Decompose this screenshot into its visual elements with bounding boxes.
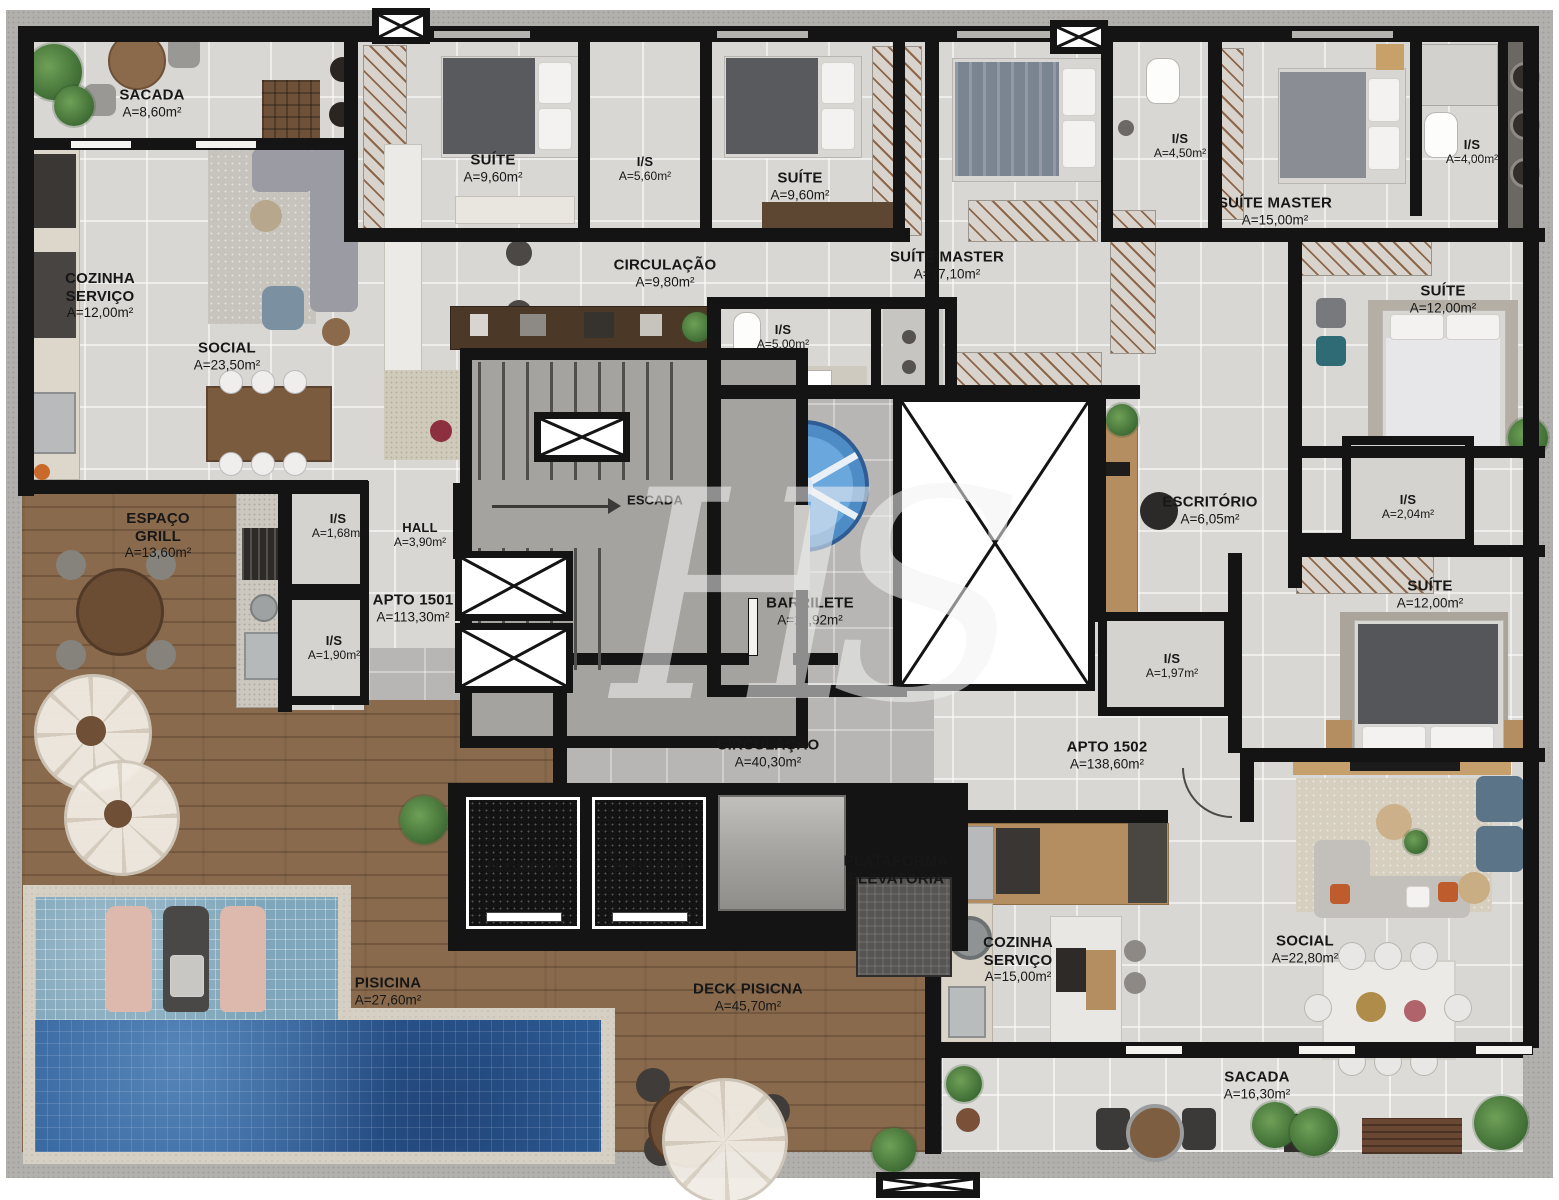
plant (1106, 404, 1138, 436)
island-wood (1086, 950, 1116, 1010)
room-area: A=1,90m² (308, 648, 360, 663)
room-label-suite_2: SUÍTEA=9,60m² (771, 170, 830, 205)
wall (925, 810, 1168, 823)
shower-head (902, 330, 916, 344)
decor (470, 314, 488, 336)
room-area: A=9,60m² (771, 187, 830, 204)
balcony-door (1298, 1045, 1356, 1055)
shower-head (1118, 120, 1134, 136)
wall (707, 297, 721, 399)
main-shaft (895, 395, 1095, 691)
sofa (252, 148, 314, 192)
room-label-elevador_1: ELEVADOR (487, 859, 560, 874)
cushion (1330, 884, 1350, 904)
wall (893, 40, 905, 234)
armchair (1476, 826, 1524, 872)
closet (948, 352, 1102, 388)
room-name: SOCIAL (194, 340, 260, 358)
room-label-social_1501: SOCIALA=23,50m² (194, 340, 260, 375)
room-label-deck_pisicna: DECK PISICNAA=45,70m² (693, 981, 803, 1016)
pool-lounger (106, 906, 152, 1012)
plant (946, 1066, 982, 1102)
umbrella (662, 1078, 788, 1200)
room-area: A=22,80m² (1272, 950, 1338, 967)
room-name: SUÍTE (464, 152, 523, 170)
room-area: A=9,80m² (614, 274, 717, 291)
room-label-circulacao_1501: CIRCULAÇÃOA=9,80m² (614, 257, 717, 292)
bed-blanket (1386, 338, 1500, 446)
dresser (762, 202, 900, 230)
chair (219, 452, 243, 476)
wall (1523, 26, 1539, 1048)
room-name: BARRILETE (766, 595, 854, 613)
plant (400, 796, 448, 844)
pool-lounger (220, 906, 266, 1012)
room-label-escada: ESCADA (627, 492, 683, 507)
bowl (430, 420, 452, 442)
room-area: A=12,00m² (1397, 595, 1463, 612)
room-label-is_master_1502: I/SA=4,00m² (1446, 137, 1498, 167)
room-label-hall: HALLA=3,90m² (394, 520, 446, 550)
room-area: A=13,60m² (112, 545, 204, 562)
nightstand (1376, 44, 1404, 70)
room-name: I/S (1446, 137, 1498, 152)
wall (1228, 553, 1242, 753)
balcony-door (195, 140, 257, 149)
room-label-escritorio: ESCRITÓRIOA=6,05m² (1162, 494, 1257, 529)
room-name: ESCADA (627, 492, 683, 507)
buffet (262, 80, 320, 142)
room-label-is_168: I/SA=1,68m² (312, 511, 364, 541)
room-area: A=138,60m² (1067, 756, 1148, 773)
wall (707, 685, 907, 697)
room-area: A=12,00m² (1410, 300, 1476, 317)
closet (968, 200, 1098, 242)
room-name: SACADA (119, 87, 184, 105)
armchair (262, 286, 304, 330)
window-sill (432, 29, 532, 40)
room-label-is_suites: I/SA=5,60m² (619, 154, 671, 184)
cushion (1316, 336, 1346, 366)
room-label-is_master_1501: I/SA=4,50m² (1154, 131, 1206, 161)
decor (640, 314, 662, 336)
window-sill (1290, 29, 1395, 40)
chair (283, 370, 307, 394)
room-name: SACADA (1224, 1069, 1290, 1087)
armchair (1476, 776, 1524, 822)
dining-table (206, 386, 332, 462)
wall (925, 40, 939, 399)
wall (1240, 748, 1254, 822)
wall (18, 480, 368, 494)
room-area: A=11,92m² (766, 612, 854, 629)
room-name: COZINHA SERVIÇO (971, 934, 1066, 969)
room-area: A=1,97m² (1146, 666, 1198, 681)
room-area: A=12,00m² (53, 305, 148, 322)
decor (520, 314, 546, 336)
chair (1410, 942, 1438, 970)
chair (1444, 994, 1472, 1022)
room-name: I/S (1146, 651, 1198, 666)
bench (455, 196, 575, 224)
round-sink (250, 594, 278, 622)
wall (793, 653, 838, 665)
wall (344, 228, 910, 242)
tall-cabinet (1128, 823, 1167, 903)
chair (56, 640, 86, 670)
room-label-circulacao_comum: CIRCULAÇÃOA=40,30m² (717, 737, 820, 772)
wall (1101, 40, 1113, 232)
shower-head (902, 360, 916, 374)
room-label-apto_1501: APTO 1501A=113,30m² (373, 592, 454, 627)
room-area: A=1,68m² (312, 526, 364, 541)
chair (1182, 1108, 1216, 1150)
room-name: SUÍTE (1397, 578, 1463, 596)
room-label-pisicina: PISICINAA=27,60m² (355, 975, 422, 1010)
window-sill (715, 29, 810, 40)
shaft-box (876, 1172, 980, 1198)
centerpiece (1356, 992, 1386, 1022)
room-area: A=5,00m² (757, 337, 809, 352)
coffee-table (250, 200, 282, 232)
stair-arrow-line (492, 505, 610, 508)
bench (1362, 1118, 1462, 1154)
centerpiece (1404, 1000, 1426, 1022)
room-area: A=40,30m² (717, 754, 820, 771)
elevator-shaft-box (455, 551, 573, 621)
room-label-is_500: I/SA=5,00m² (757, 322, 809, 352)
chair (283, 452, 307, 476)
bed-blanket (726, 58, 818, 154)
room-label-is_190: I/SA=1,90m² (308, 633, 360, 663)
room-area: A=113,30m² (373, 609, 454, 626)
room-name: I/S (312, 511, 364, 526)
table (76, 716, 106, 746)
room-area: A=2,04m² (1382, 507, 1434, 522)
wall (578, 40, 590, 234)
floor-plan: ♿ (0, 0, 1559, 1200)
bed-blanket (955, 62, 1059, 176)
room-name: APTO 1502 (1067, 739, 1148, 757)
room-name: APTO 1501 (373, 592, 454, 610)
chair (1338, 942, 1366, 970)
room-name: ESCRITÓRIO (1162, 494, 1257, 512)
room-name: PISICINA (355, 975, 422, 993)
elevator-shaft-box (455, 623, 573, 693)
stool (1124, 972, 1146, 994)
room-label-plataforma: PLATAFORMA ELEVATÓRIA (835, 852, 957, 887)
side-table (322, 318, 350, 346)
room-label-sacada_1502: SACADAA=16,30m² (1224, 1069, 1290, 1104)
stair-arrow-head (608, 498, 621, 514)
plant (1290, 1108, 1338, 1156)
room-name: SUÍTE (771, 170, 830, 188)
shaft-box (372, 8, 430, 44)
appliance (996, 828, 1040, 894)
room-name: I/S (757, 322, 809, 337)
chair (56, 550, 86, 580)
side-table (1458, 872, 1490, 904)
cushion (1316, 298, 1346, 328)
table (104, 800, 132, 828)
bed-blanket (1358, 624, 1498, 724)
storage-cabinet (718, 795, 846, 911)
room-label-suite_master_1502: SUÍTE MASTERA=15,00m² (1218, 195, 1332, 230)
room-area: A=16,30m² (1224, 1086, 1290, 1103)
toilet (1146, 58, 1180, 104)
cushion (1438, 882, 1458, 902)
room-name: SUÍTE (1410, 283, 1476, 301)
room-name: ESPAÇO GRILL (112, 510, 204, 545)
room-name: I/S (308, 633, 360, 648)
room-name: SUÍTE MASTER (1218, 195, 1332, 213)
room-name: ELEVADOR (613, 859, 686, 874)
plant (54, 86, 94, 126)
wall (941, 1042, 1523, 1058)
room-name: HALL (394, 520, 446, 535)
wall (1410, 40, 1422, 216)
chair (1304, 994, 1332, 1022)
room-area: A=23,50m² (194, 357, 260, 374)
wall (1288, 446, 1545, 458)
room-name: I/S (619, 154, 671, 169)
towel (170, 955, 204, 997)
wall (1101, 228, 1545, 242)
pot (956, 1108, 980, 1132)
balcony-door (1125, 1045, 1183, 1055)
room-name: ELEVADOR (487, 859, 560, 874)
wall (700, 40, 712, 234)
shower (1420, 44, 1498, 106)
chair (251, 452, 275, 476)
room-label-espaco_grill: ESPAÇO GRILLA=13,60m² (112, 510, 204, 562)
chair (146, 640, 176, 670)
wall (344, 26, 358, 234)
room-name: CIRCULAÇÃO (717, 737, 820, 755)
room-label-suite_master_1501: SUÍTE MASTERA=17,10m² (890, 249, 1004, 284)
room-name: SUÍTE MASTER (890, 249, 1004, 267)
stair-door-gap (794, 505, 810, 590)
room-name: CIRCULAÇÃO (614, 257, 717, 275)
balcony-door (70, 140, 132, 149)
door-leaf (748, 598, 758, 656)
room-name: SOCIAL (1272, 933, 1338, 951)
room-area: A=27,60m² (355, 992, 422, 1009)
platform-lift (856, 877, 952, 977)
wall (453, 483, 465, 559)
wall (1240, 748, 1545, 762)
stool (1124, 940, 1146, 962)
room-area: A=15,00m² (971, 969, 1066, 986)
window-sill (955, 29, 1060, 40)
bed-blanket (443, 58, 535, 154)
wall (18, 26, 34, 496)
room-area: A=4,00m² (1446, 152, 1498, 167)
room-area: A=15,00m² (1218, 212, 1332, 229)
elevator-door (612, 912, 688, 922)
plant (1404, 830, 1428, 854)
shelf-desk (450, 306, 710, 350)
wall (1498, 40, 1508, 232)
chair (1374, 942, 1402, 970)
room-label-cozinha_servico_1502: COZINHA SERVIÇOA=15,00m² (971, 934, 1066, 986)
room-area: A=6,05m² (1162, 511, 1257, 528)
room-label-cozinha_servico_1501: COZINHA SERVIÇOA=12,00m² (53, 270, 148, 322)
kitchen-island (384, 144, 422, 372)
chair (1096, 1108, 1130, 1150)
room-label-is_197: I/SA=1,97m² (1146, 651, 1198, 681)
room-label-is_204: I/SA=2,04m² (1382, 492, 1434, 522)
wall (278, 483, 292, 712)
room-area: A=4,50m² (1154, 146, 1206, 161)
room-area: A=5,60m² (619, 169, 671, 184)
room-label-barrilete: BARRILETEA=11,92m² (766, 595, 854, 630)
decor (584, 312, 614, 338)
room-label-sacada_1501: SACADAA=8,60m² (119, 87, 184, 122)
pool-water (35, 1020, 601, 1152)
room-name: I/S (1154, 131, 1206, 146)
room-name: DECK PISICNA (693, 981, 803, 999)
plant (872, 1128, 916, 1172)
wall (1288, 533, 1348, 545)
wall (707, 385, 721, 697)
balcony-door (1475, 1045, 1533, 1055)
room-area: A=17,10m² (890, 266, 1004, 283)
room-label-apto_1502: APTO 1502A=138,60m² (1067, 739, 1148, 774)
wall (18, 138, 356, 150)
stool (506, 240, 532, 266)
table (1126, 1104, 1184, 1162)
room-area: A=8,60m² (119, 104, 184, 121)
wall (1288, 545, 1545, 557)
wall (707, 297, 957, 309)
elevator-door (486, 912, 562, 922)
bed-blanket (1280, 72, 1366, 178)
plant (1474, 1096, 1528, 1150)
room-label-suite_1: SUÍTEA=9,60m² (464, 152, 523, 187)
room-label-social_1502: SOCIALA=22,80m² (1272, 933, 1338, 968)
pot (34, 464, 50, 480)
room-area: A=3,90m² (394, 535, 446, 550)
room-name: I/S (1382, 492, 1434, 507)
room-label-suite_4: SUÍTEA=12,00m² (1397, 578, 1463, 613)
room-label-suite_3: SUÍTEA=12,00m² (1410, 283, 1476, 318)
room-name: PLATAFORMA ELEVATÓRIA (835, 852, 957, 887)
closet (1300, 240, 1432, 276)
room-name: COZINHA SERVIÇO (53, 270, 148, 305)
wall (871, 303, 881, 397)
room-area: A=9,60m² (464, 169, 523, 186)
wall (945, 297, 957, 399)
room-area: A=45,70m² (693, 998, 803, 1015)
room-label-elevador_2: ELEVADOR (613, 859, 686, 874)
sink (948, 986, 986, 1038)
shaft-box (1050, 20, 1108, 54)
